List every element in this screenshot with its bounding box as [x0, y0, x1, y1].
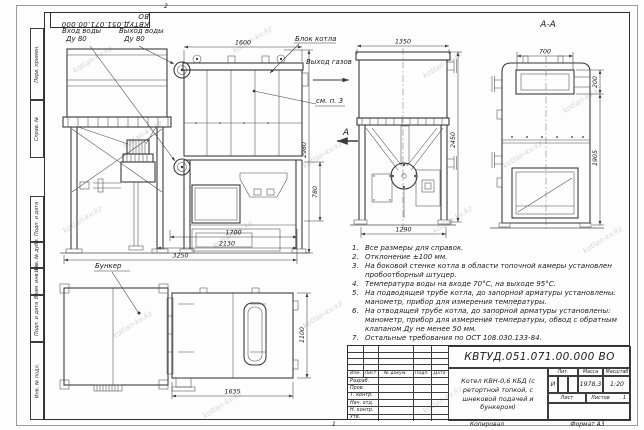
label-gas-outlet: Выход газов	[306, 58, 352, 66]
dim-side-height: 2450	[450, 132, 457, 148]
row-razrab: Разраб.	[350, 379, 378, 384]
note-item: 1.Все размеры для справок.	[352, 243, 633, 252]
sheets-value: 1	[623, 395, 626, 401]
note-number: 6.	[352, 306, 365, 333]
label-water-inlet: Вход воды	[62, 27, 102, 35]
title-block-name: Котел КВН-0,6 КБД (с ретортной топкой, с…	[448, 368, 548, 421]
label-water-outlet: Выход воды	[119, 27, 164, 35]
note-number: 5.	[352, 288, 365, 306]
view-boiler-side-elevation	[350, 48, 457, 230]
mass-header: Масса	[578, 368, 603, 376]
dim-section-width: 700	[539, 49, 551, 56]
lit-cell-3	[568, 376, 578, 393]
note-item: 6.На отводящей трубе котла, до запорной …	[352, 306, 633, 333]
dim-side-base: 1290	[395, 227, 411, 234]
sheets-label: Листов	[591, 395, 610, 401]
fold-mark-top: 2	[164, 3, 168, 10]
margin-label: Инв. № подл.	[34, 364, 40, 399]
drawing-sheet: kotlan-kv.kz kotlan-kv.kz kotlan-kv.kz k…	[0, 0, 644, 430]
note-text: На подводящей трубе котла, до запорной а…	[365, 288, 633, 306]
row-prov: Пров.	[350, 386, 378, 391]
title-block-doc-number: КВТУД.051.071.00.000 ВО	[448, 346, 631, 368]
note-text: Температура воды на входе 70°С, на выход…	[365, 279, 633, 288]
note-text: Отклонение ±100 мм.	[365, 252, 633, 261]
title-block-line	[378, 346, 379, 421]
footer-format: Формат А3	[555, 421, 620, 428]
title-block-line	[431, 346, 432, 421]
dim-plan-length: 1635	[224, 389, 240, 396]
margin-cell-inv-podl: Инв. № подл.	[30, 342, 44, 420]
dim-plan-depth: 1100	[299, 327, 306, 343]
footer-copied-by: Копировал	[452, 421, 522, 428]
margin-label: Взам. инв. №	[34, 265, 40, 299]
lit-value: И	[548, 376, 558, 393]
margin-cell-podp-data-1: Подп. и дата	[30, 196, 44, 242]
margin-label: Справ. №	[34, 117, 40, 141]
dim-firebox-height: 780	[312, 186, 319, 198]
note-number: 2.	[352, 252, 365, 261]
note-text: Все размеры для справок.	[365, 243, 633, 252]
technical-notes: 1.Все размеры для справок. 2.Отклонение …	[352, 243, 633, 342]
dim-section-offset: 200	[592, 76, 599, 88]
row-nachotd: Нач. отд.	[350, 401, 378, 406]
dim-section-height: 1905	[592, 150, 599, 166]
lit-header: Лит.	[548, 368, 578, 376]
note-item: 7.Остальные требования по ОСТ 108.030.13…	[352, 333, 633, 342]
margin-cell-sprav-no: Справ. №	[30, 100, 44, 158]
note-text: На боковой стенке котла в области топочн…	[365, 261, 633, 279]
note-item: 4.Температура воды на входе 70°С, на вых…	[352, 279, 633, 288]
sheets-cell: Листов 1	[586, 393, 631, 403]
dim-2130: 2130	[219, 241, 235, 248]
col-data: Дата	[431, 371, 448, 376]
label-bunker: Бункер	[95, 262, 122, 270]
row-nkontr: Н. контр.	[350, 408, 378, 413]
label-boiler-block: Блок котла	[295, 35, 336, 43]
note-number: 4.	[352, 279, 365, 288]
dim-1700: 1700	[225, 230, 241, 237]
dim-front-height: 2980	[301, 142, 308, 158]
note-item: 5.На подводящей трубе котла, до запорной…	[352, 288, 633, 306]
margin-cell-podp-data-2: Подп. и дата	[30, 295, 44, 342]
col-izm: Изм.	[348, 371, 363, 376]
view-boiler-front-elevation	[174, 55, 308, 253]
margin-label: Подп. и дата	[34, 301, 40, 335]
top-doc-number: КВТУД.051.071.00.000 ВО	[51, 12, 149, 28]
scale-value: 1:20	[603, 376, 631, 393]
row-utv: Утв.	[350, 415, 378, 420]
scale-header: Масштаб	[603, 368, 631, 376]
label-view-arrow-a: А	[342, 128, 349, 138]
col-list: Лист	[363, 371, 378, 376]
note-number: 3.	[352, 261, 365, 279]
margin-cell-perv-primen: Перв. примен.	[30, 28, 44, 100]
view-plan	[60, 284, 298, 391]
note-number: 1.	[352, 243, 365, 252]
margin-label: Перв. примен.	[34, 45, 40, 83]
dim-front-width: 1600	[235, 40, 251, 47]
dim-side-width: 1350	[395, 39, 411, 46]
note-number: 7.	[352, 333, 365, 342]
col-doc: № докум.	[378, 371, 413, 376]
lit-cell-2	[558, 376, 568, 393]
fold-mark-bottom: 1	[332, 421, 336, 428]
margin-label: Подп. и дата	[34, 202, 40, 236]
note-text: Остальные требования по ОСТ 108.030.133-…	[365, 333, 633, 342]
label-see-note-3: см. п. 3	[316, 97, 343, 105]
col-podp: Подп.	[413, 371, 431, 376]
note-item: 2.Отклонение ±100 мм.	[352, 252, 633, 261]
dim-3250: 3250	[172, 253, 188, 260]
row-tkontr: Т. контр.	[350, 393, 378, 398]
mass-value: 1978,3	[578, 376, 603, 393]
title-block: Изм. Лист № докум. Подп. Дата Разраб. Пр…	[347, 345, 630, 420]
margin-cell-vzam-inv: Взам. инв. №	[30, 268, 44, 295]
view-section-aa	[490, 56, 604, 230]
sheet-label: Лист	[548, 393, 586, 403]
label-section-a-a: А-А	[539, 20, 556, 30]
label-water-outlet-dn: Ду 80	[123, 35, 145, 43]
leaders-layer	[90, 43, 358, 315]
view-bunker-elevation	[60, 49, 310, 253]
note-item: 3.На боковой стенке котла в области топо…	[352, 261, 633, 279]
label-water-inlet-dn: Ду 80	[65, 35, 87, 43]
title-block-line	[413, 346, 414, 421]
top-doc-number-stamp: КВТУД.051.071.00.000 ВО	[50, 12, 150, 28]
organization-cell	[548, 403, 631, 421]
note-text: На отводящей трубе котла, до запорной ар…	[365, 306, 633, 333]
